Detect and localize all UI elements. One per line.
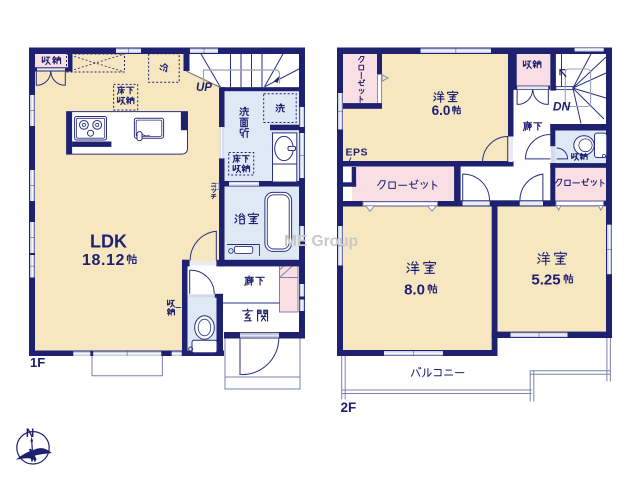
svg-text:8.0: 8.0 (404, 282, 425, 299)
svg-text:UP: UP (196, 82, 212, 94)
svg-text:EPS: EPS (346, 147, 369, 159)
svg-text:DN: DN (553, 100, 571, 114)
svg-text:5.25: 5.25 (531, 272, 560, 289)
svg-text:LDK: LDK (90, 232, 127, 252)
svg-text:1F: 1F (30, 355, 45, 370)
svg-text:2F: 2F (341, 400, 357, 415)
svg-text:N: N (26, 428, 34, 440)
svg-text:ME Group: ME Group (284, 233, 358, 250)
svg-text:6.0: 6.0 (432, 103, 451, 118)
svg-text:18.12: 18.12 (82, 252, 125, 269)
